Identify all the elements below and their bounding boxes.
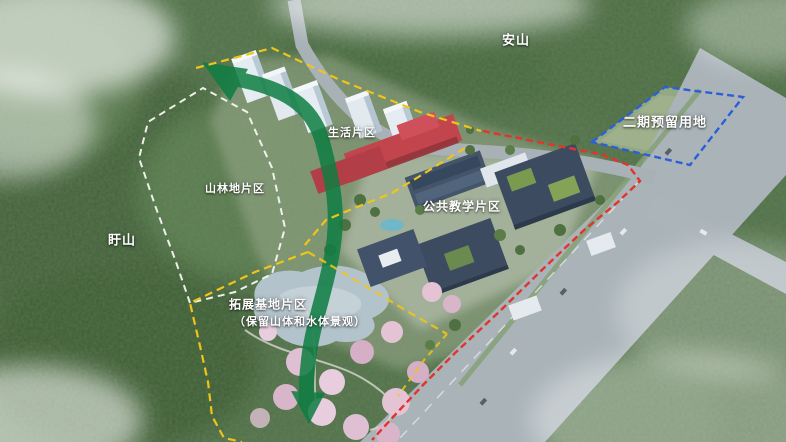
label-forest-zone: 山林地片区 xyxy=(205,180,265,196)
label-expansion-note: （保留山体和水体景观） xyxy=(234,313,366,329)
label-xushan-mountain: 盱山 xyxy=(108,230,136,249)
campus-masterplan-aerial-rendering: 安山 二期预留用地 生活片区 山林地片区 盱山 公共教学片区 拓展基地片区 （保… xyxy=(0,0,786,442)
label-phase2-reserved-land: 二期预留用地 xyxy=(623,112,707,131)
rendering-canvas xyxy=(0,0,786,442)
label-teaching-zone: 公共教学片区 xyxy=(423,198,501,215)
label-anshan-mountain: 安山 xyxy=(502,30,530,49)
label-living-zone: 生活片区 xyxy=(328,124,376,140)
label-expansion-zone: 拓展基地片区 xyxy=(229,296,307,313)
